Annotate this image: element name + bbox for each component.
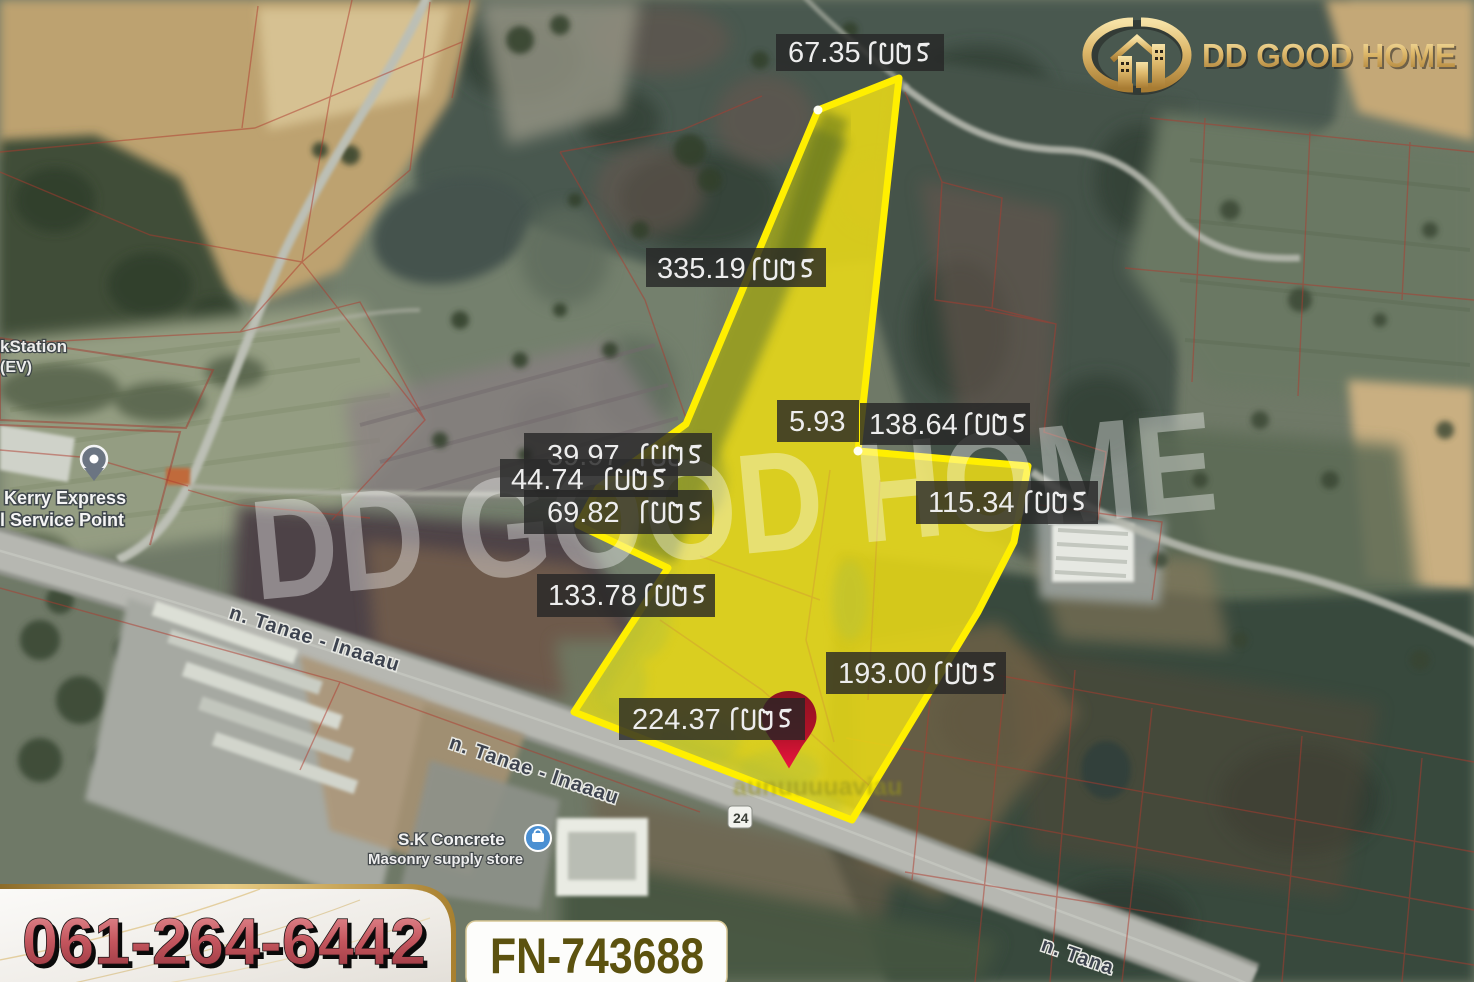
svg-text:115.34: 115.34 [928,487,1015,519]
svg-text:061-264-6442: 061-264-6442 [22,904,426,978]
svg-text:5.93: 5.93 [789,406,845,438]
svg-text:24: 24 [733,810,749,826]
svg-text:Masonry supply store: Masonry supply store [368,851,523,868]
svg-text:kStation: kStation [0,337,67,356]
svg-text:S.K Concrete: S.K Concrete [398,830,505,849]
svg-text:138.64: 138.64 [869,409,958,441]
svg-text:Kerry Express: Kerry Express [4,488,126,508]
svg-text:aunuuuuaviau: aunuuuuaviau [733,773,902,801]
svg-text:193.00: 193.00 [838,658,927,690]
svg-text:133.78: 133.78 [548,580,637,612]
svg-text:224.37: 224.37 [632,704,721,736]
svg-text:69.82: 69.82 [547,497,620,529]
svg-text:335.19: 335.19 [657,253,746,285]
svg-text:l Service Point: l Service Point [0,510,124,530]
svg-text:67.35: 67.35 [788,37,861,69]
svg-text:FN-743688: FN-743688 [490,928,704,982]
svg-text:DD GOOD HOME: DD GOOD HOME [1202,37,1456,74]
svg-text:(EV): (EV) [0,359,32,376]
